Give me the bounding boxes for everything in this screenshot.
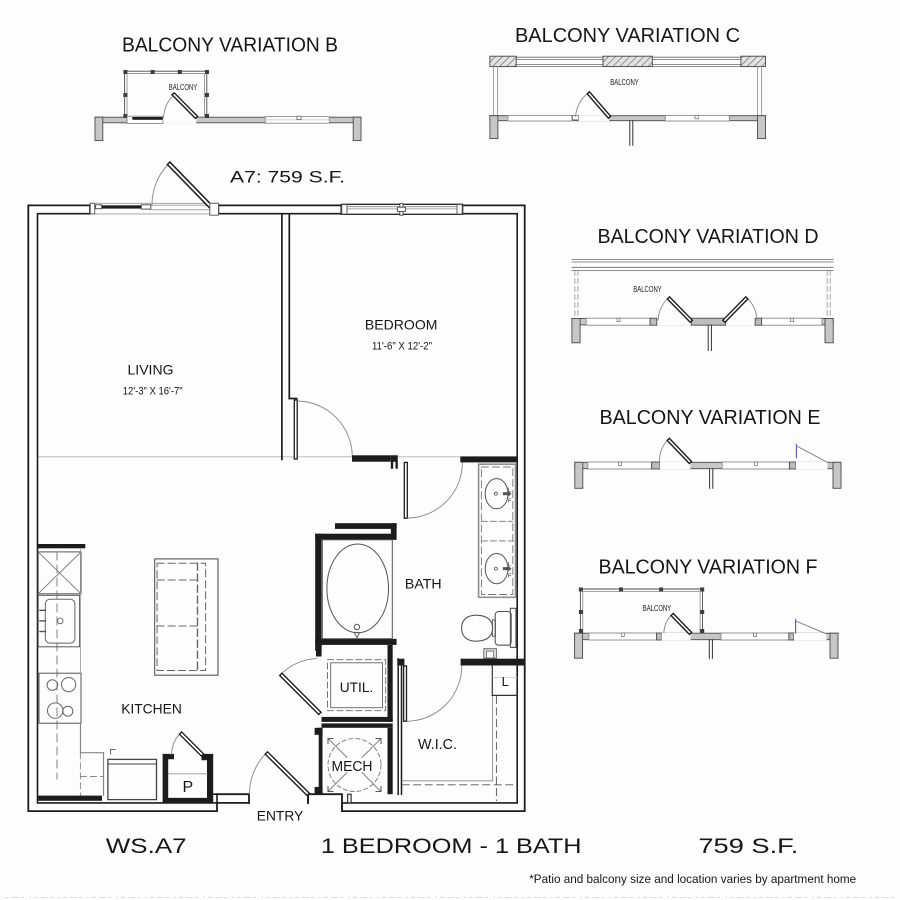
svg-text:1 BEDROOM - 1 BATH: 1 BEDROOM - 1 BATH <box>321 834 582 858</box>
svg-text:BALCONY VARIATION F: BALCONY VARIATION F <box>599 556 818 579</box>
svg-text:11'-6" X 12'-2": 11'-6" X 12'-2" <box>372 341 432 353</box>
svg-text:12'-3" X 16'-7": 12'-3" X 16'-7" <box>123 386 183 398</box>
svg-text:P: P <box>182 779 193 796</box>
svg-text:LIVING: LIVING <box>128 362 174 378</box>
svg-text:UTIL.: UTIL. <box>340 679 374 695</box>
svg-text:759 S.F.: 759 S.F. <box>698 834 798 858</box>
svg-text:BALCONY VARIATION E: BALCONY VARIATION E <box>600 406 821 429</box>
svg-text:BALCONY VARIATION D: BALCONY VARIATION D <box>598 225 819 248</box>
svg-text:W.I.C.: W.I.C. <box>418 737 457 753</box>
svg-text:BALCONY: BALCONY <box>169 82 198 92</box>
svg-text:WS.A7: WS.A7 <box>106 834 187 858</box>
svg-text:BATH: BATH <box>405 576 442 592</box>
svg-text:BALCONY: BALCONY <box>633 284 662 294</box>
svg-text:BALCONY VARIATION C: BALCONY VARIATION C <box>515 24 740 47</box>
svg-text:MECH: MECH <box>332 759 373 775</box>
svg-text:KITCHEN: KITCHEN <box>121 701 182 717</box>
svg-text:ENTRY: ENTRY <box>257 807 304 823</box>
svg-text:A7: 759 S.F.: A7: 759 S.F. <box>230 168 345 187</box>
svg-text:BEDROOM: BEDROOM <box>365 317 438 333</box>
svg-text:BALCONY: BALCONY <box>643 603 672 613</box>
svg-text:BALCONY: BALCONY <box>610 77 639 87</box>
svg-text:L: L <box>508 487 511 493</box>
svg-text:L: L <box>502 674 509 689</box>
svg-text:BALCONY VARIATION B: BALCONY VARIATION B <box>122 34 338 57</box>
svg-text:L: L <box>508 562 511 568</box>
svg-text:*Patio and balcony size and lo: *Patio and balcony size and location var… <box>529 872 856 886</box>
